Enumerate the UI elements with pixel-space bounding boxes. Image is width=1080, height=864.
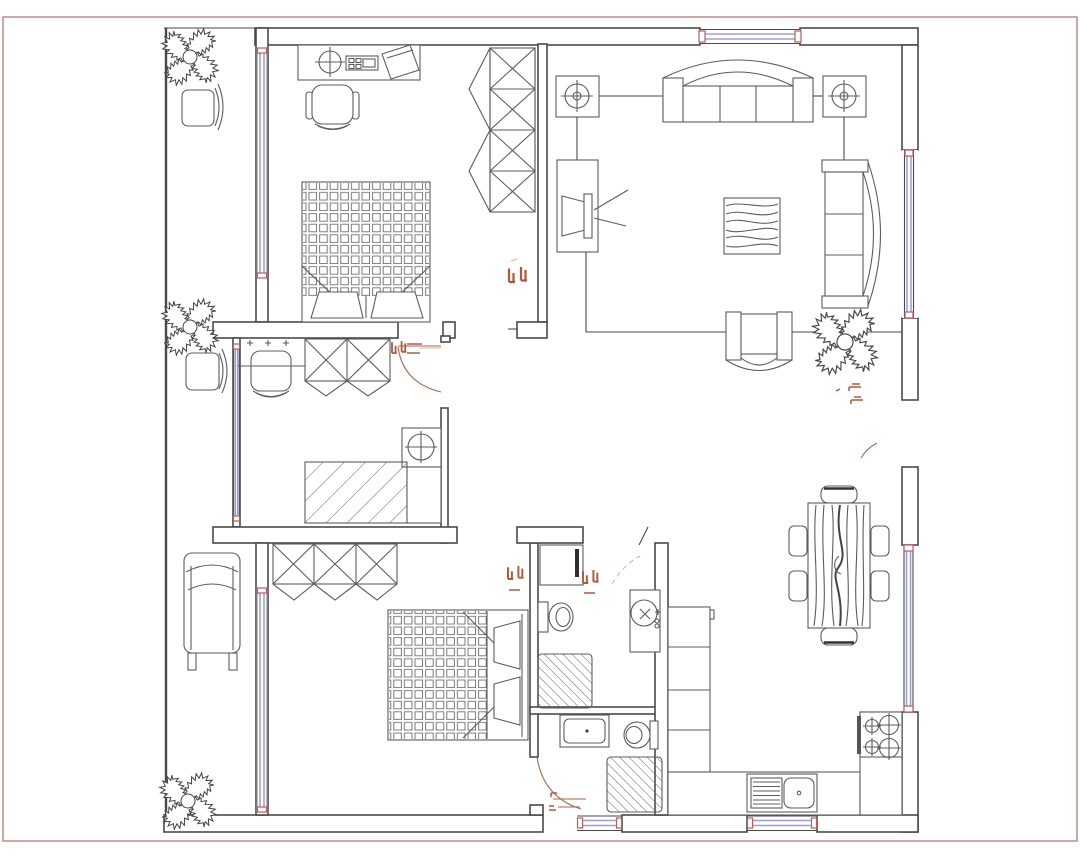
hatched-counter xyxy=(305,462,407,523)
bath-shelf xyxy=(540,545,583,585)
tag-living-window xyxy=(836,384,863,404)
window-bottom-bath xyxy=(577,816,622,831)
sliding-wardrobe-4panel xyxy=(469,48,535,212)
round-basin xyxy=(630,590,661,652)
top-wall-left-segment xyxy=(255,28,700,45)
wardrobe-door-zigzag xyxy=(273,584,397,600)
bottom-wall-b xyxy=(622,815,747,832)
hall-wall-vertical xyxy=(538,44,547,322)
room-bathroom xyxy=(538,545,662,812)
balcony-chair-middle xyxy=(186,349,227,393)
window-bedroom1-balcony xyxy=(256,48,268,278)
bathroom-north-wall xyxy=(517,527,583,543)
kitchen-sink xyxy=(747,774,817,812)
wardrobe-door-zigzag xyxy=(469,48,490,212)
door-swing-entry xyxy=(537,757,581,809)
window-dressing-balcony xyxy=(233,344,240,521)
double-bed-1 xyxy=(302,182,430,322)
bedroom2-right-wall xyxy=(530,543,538,757)
wardrobe-2panel xyxy=(305,339,390,396)
armchair xyxy=(726,312,792,371)
right-wall-b xyxy=(902,318,918,400)
tag-bath-door-right xyxy=(583,570,599,593)
room-dressing xyxy=(238,339,441,523)
shower-pan-2 xyxy=(607,757,662,812)
toilet-1 xyxy=(538,602,573,632)
wardrobe-3panel xyxy=(273,544,397,600)
window-bedroom2-balcony xyxy=(256,588,268,813)
dining-chair xyxy=(871,526,889,556)
door-frame-stub xyxy=(441,336,450,342)
counter-cabinet xyxy=(407,467,441,523)
bedroom1-south-wall-a xyxy=(213,322,398,338)
end-table-left xyxy=(556,76,599,117)
dressing-right-wall xyxy=(441,408,448,543)
tag-entry-door xyxy=(549,793,586,810)
double-bed-2 xyxy=(388,610,528,740)
pillow xyxy=(371,292,423,318)
three-seat-sofa xyxy=(663,60,813,122)
window-bottom-kitchen xyxy=(747,816,817,831)
tag-hall-upper xyxy=(509,267,527,282)
tag-dressing-door xyxy=(392,341,441,353)
office-chair xyxy=(306,85,359,130)
toilet-2 xyxy=(624,721,658,749)
tall-cabinet-column xyxy=(668,607,714,772)
potted-plant-top xyxy=(157,24,222,89)
bottom-wall-c xyxy=(817,815,918,832)
washing-machine xyxy=(402,428,441,467)
floor-plan-sheet xyxy=(0,0,1080,864)
pillow xyxy=(494,621,520,669)
coffee-table xyxy=(724,198,780,254)
door-swing-kitchen xyxy=(612,556,640,584)
window-right-dining xyxy=(904,545,913,712)
plus-marks xyxy=(247,340,289,346)
right-wall-a xyxy=(902,45,918,150)
tv-cabinet xyxy=(557,160,628,252)
floor-plan-canvas xyxy=(0,0,1080,864)
lounge-chair-side-view xyxy=(184,553,240,670)
shower-pan-1 xyxy=(538,654,592,708)
room-bedroom-lower-left xyxy=(273,544,528,740)
top-wall-right-segment xyxy=(800,28,918,45)
dining-table-set xyxy=(789,486,889,645)
pillow xyxy=(494,677,520,725)
potted-plant-living xyxy=(808,305,883,380)
bedroom2-north-wall xyxy=(213,527,457,543)
bottom-wall-a xyxy=(164,815,543,832)
side-balcony xyxy=(155,24,240,833)
hall-wall-corner xyxy=(517,322,547,338)
gas-stove xyxy=(857,712,902,760)
door-swing-dining xyxy=(861,443,877,458)
tag-bath-door-left xyxy=(508,566,524,590)
room-bedroom-upper-left xyxy=(298,45,535,322)
dressing-chair xyxy=(238,340,305,397)
dining-chair xyxy=(789,526,807,556)
desk xyxy=(298,45,420,80)
window-top-living xyxy=(699,29,801,44)
entry-door-stub xyxy=(530,805,543,815)
end-table-right xyxy=(823,76,866,117)
vanity-sink xyxy=(560,715,609,747)
right-wall-c xyxy=(902,467,918,545)
room-kitchen-dining xyxy=(668,486,902,815)
window-right-living xyxy=(902,150,918,318)
mirror-bar xyxy=(575,549,579,577)
wardrobe-door-zigzag xyxy=(305,381,390,396)
television xyxy=(562,196,585,236)
curved-sofa xyxy=(822,160,881,308)
balcony-chair-top xyxy=(182,84,223,130)
right-wall-d xyxy=(902,712,918,832)
dining-chair xyxy=(789,571,807,601)
cabinet-handle xyxy=(710,610,714,619)
dining-chair xyxy=(871,571,889,601)
pillow xyxy=(311,292,363,318)
